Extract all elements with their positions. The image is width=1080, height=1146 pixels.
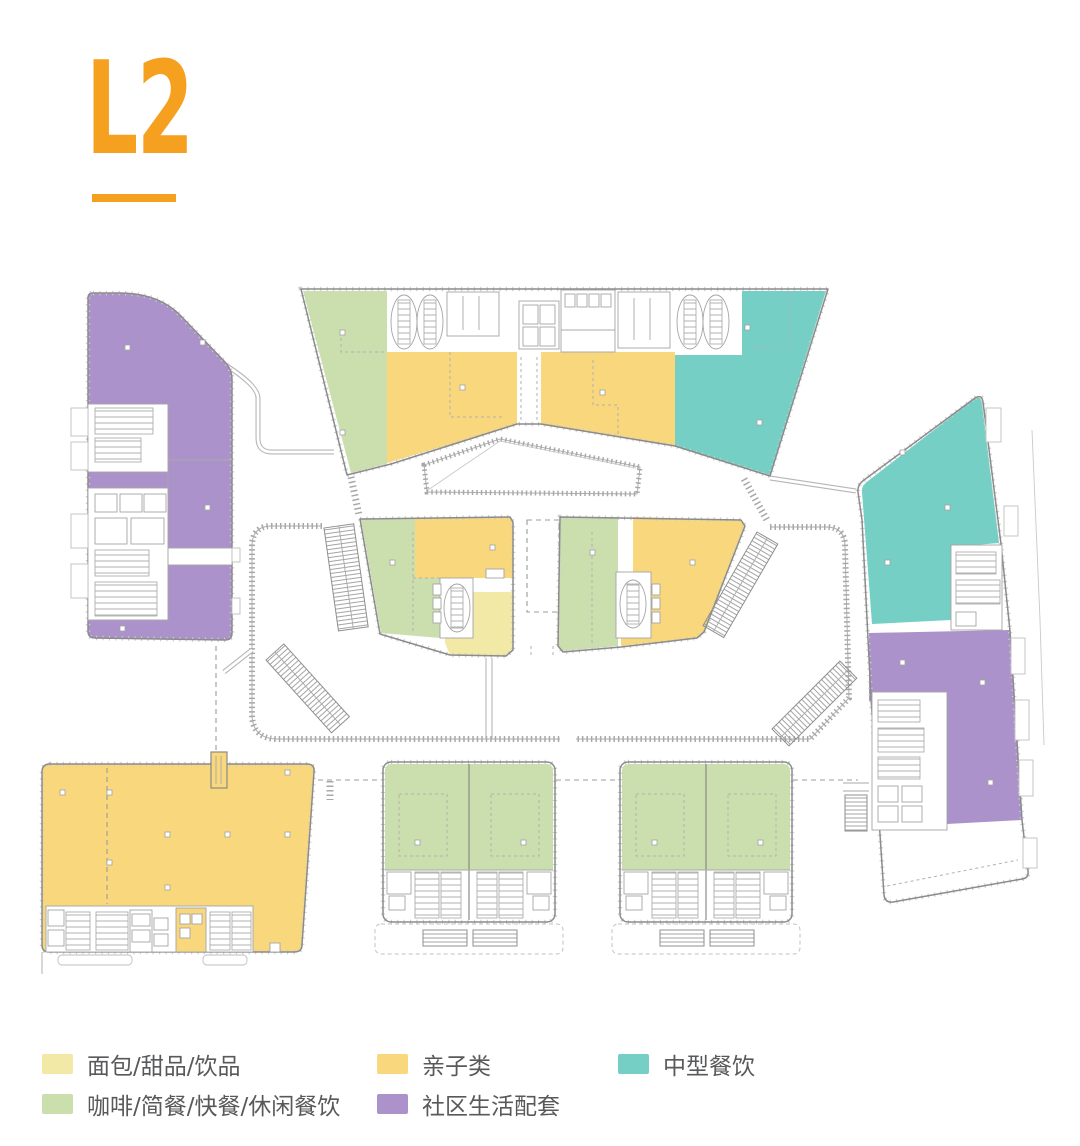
floor-plan [0, 0, 1080, 1146]
legend-swatch-community [377, 1094, 408, 1114]
parcel-casual-dining [303, 291, 387, 473]
parcel-casual-dining [558, 517, 618, 651]
platform-outline [375, 924, 563, 954]
legend-label-kids: 亲子类 [422, 1047, 491, 1081]
parcel-kids [541, 352, 675, 446]
legend-item-kids: 亲子类 [377, 1047, 491, 1081]
exterior-stair [473, 930, 517, 946]
legend-label-community: 社区生活配套 [422, 1087, 560, 1121]
platform-outline [612, 924, 800, 954]
legend-item-community: 社区生活配套 [377, 1087, 560, 1121]
center-west-block [360, 517, 513, 656]
exterior-stair [845, 795, 867, 831]
bridge-east [843, 783, 869, 791]
exterior-stair [660, 930, 704, 946]
escalator-northwest [324, 524, 368, 631]
east-building [843, 397, 1044, 902]
legend: 面包/甜品/饮品 亲子类 中型餐饮 咖啡/简餐/快餐/休闲餐饮 社区生活配套 [0, 1038, 1080, 1138]
legend-item-bakery: 面包/甜品/饮品 [42, 1047, 241, 1081]
south-building-a [375, 762, 563, 954]
site-dashed-lines [216, 646, 858, 780]
southwest-building [42, 752, 314, 974]
service-core [46, 906, 280, 952]
west-building [71, 293, 240, 640]
south-building-b [612, 762, 800, 954]
bridge-northeast [744, 479, 768, 522]
legend-label-casual-dining: 咖啡/简餐/快餐/休闲餐饮 [87, 1087, 340, 1121]
court-connector [486, 658, 492, 739]
legend-label-medium-dining: 中型餐饮 [663, 1047, 755, 1081]
north-building [301, 289, 828, 476]
exterior-stair [423, 930, 467, 946]
legend-item-casual-dining: 咖啡/简餐/快餐/休闲餐饮 [42, 1087, 340, 1121]
escalator-southwest [266, 644, 349, 733]
legend-swatch-kids [377, 1054, 408, 1074]
legend-item-medium-dining: 中型餐饮 [618, 1047, 755, 1081]
page: L2 [0, 0, 1080, 1146]
site-edge [1032, 430, 1044, 745]
center-void-dashed [527, 520, 559, 612]
bridge-northwest [351, 477, 359, 515]
bridge-north [211, 752, 227, 788]
legend-swatch-bakery [42, 1054, 73, 1074]
legend-swatch-medium-dining [618, 1054, 649, 1074]
exterior-stair [710, 930, 754, 946]
legend-label-bakery: 面包/甜品/饮品 [87, 1047, 241, 1081]
legend-swatch-casual-dining [42, 1094, 73, 1114]
